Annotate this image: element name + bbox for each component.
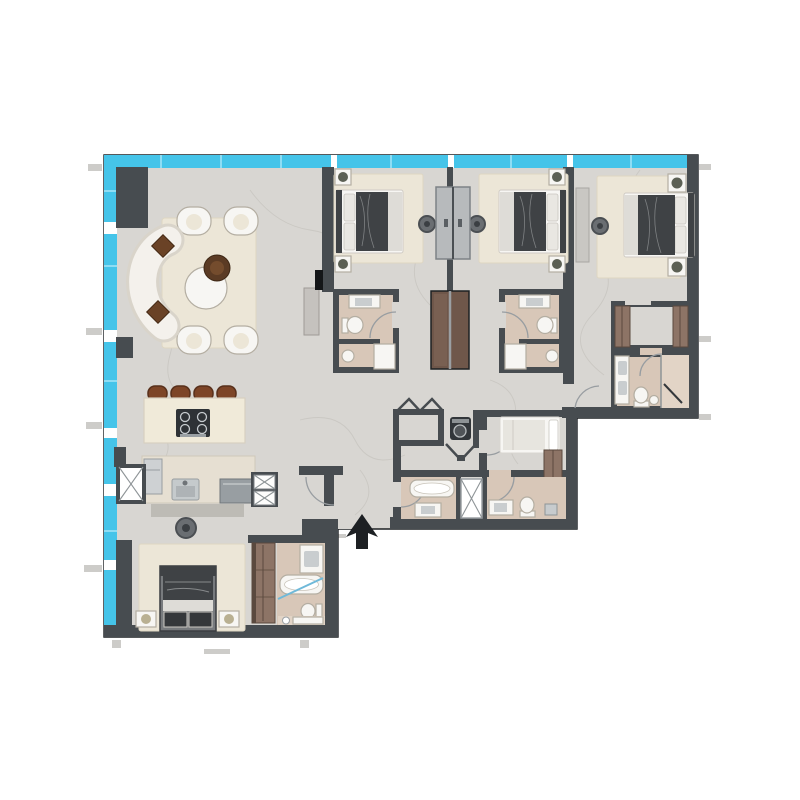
bathroom-5-shelf (545, 504, 557, 515)
dining-chair-1 (177, 207, 211, 235)
wall-bathD-left-b (393, 507, 401, 519)
bedroom-2-bed (336, 190, 403, 253)
bedroom-3-bed (499, 190, 566, 253)
washing-machine (450, 417, 471, 440)
hall-brown-closet (431, 291, 469, 369)
bathroom-2-vanity (349, 295, 380, 308)
column-top-left (116, 167, 148, 228)
table-centerpiece-inner (210, 261, 224, 275)
bedroom-2 (334, 169, 435, 272)
master-bath-shower-strip (278, 616, 325, 625)
bedroom-3 (469, 169, 568, 272)
master-bath-vanity (300, 545, 323, 573)
floor-plan-page (0, 0, 800, 800)
master-nightstand-right (219, 611, 239, 627)
oven-tower (251, 472, 278, 507)
service-shaft (118, 466, 144, 502)
bathroom-3-partition (519, 339, 563, 344)
dining-chair-4 (224, 326, 258, 354)
bedroom-2-nightstand-top (335, 169, 351, 185)
wall-left-stub-1 (116, 337, 133, 358)
tick-left-3 (86, 422, 102, 429)
wall-maid-left-a (479, 410, 487, 430)
bathroom-5 (487, 470, 566, 519)
tick-right-2 (699, 336, 711, 342)
bathroom-2 (336, 292, 400, 370)
bathroom-2-toilet (342, 317, 363, 334)
tick-right-1 (699, 164, 711, 170)
bathroom-5-toilet (520, 497, 535, 517)
bedroom-2-nightstand-bottom (335, 256, 351, 272)
bathroom-2-basin (342, 350, 354, 362)
maid-bed (500, 417, 560, 453)
ceiling-fan-bedroom-3 (469, 216, 485, 232)
tick-bottom-2 (204, 649, 230, 654)
walk-in-door-gap (625, 298, 651, 305)
bedroom-4-bed (624, 193, 694, 257)
shared-wardrobe (436, 187, 470, 259)
guest-bathtub (410, 480, 454, 497)
bathroom-2-shower (374, 344, 395, 369)
bathroom-2-partition (336, 339, 380, 344)
bathroom-3 (498, 292, 563, 370)
wall-kitchen-t-vertical (324, 475, 334, 506)
bathroom-5-sink (489, 500, 513, 515)
master-bathtub (280, 575, 323, 594)
bathroom-3-basin (546, 350, 558, 362)
floor-plan (0, 0, 800, 800)
wall-maid-top (479, 410, 574, 417)
bedroom-4-nightstand-bottom (668, 258, 686, 276)
dining-chair-2 (224, 207, 258, 235)
bathroom-3-toilet (537, 317, 557, 334)
bedroom-4-nightstand-top (668, 174, 686, 192)
bedroom-4-door-gap (563, 384, 574, 407)
tv-screen (315, 270, 323, 290)
walk-in-closet-4 (614, 298, 690, 348)
tv-console (304, 288, 319, 335)
bathroom-3-shower (505, 344, 526, 369)
wall-step-vertical (566, 407, 577, 529)
glazing-top (104, 155, 698, 168)
bathroom-3-door-gap (498, 302, 506, 328)
laundry-door-stop (457, 455, 465, 461)
master-nightstand-left (136, 611, 156, 627)
wall-living-bedroom2 (322, 167, 334, 292)
bathroom-4-toilet (634, 387, 649, 407)
bathroom-2-door-gap (392, 302, 400, 328)
dishwasher (220, 479, 254, 503)
wall-master-left-strip (116, 540, 132, 626)
bathroom-4-vanity (615, 356, 629, 404)
wall-master-top (248, 535, 328, 543)
fridge (144, 459, 162, 494)
tick-bottom-1 (112, 640, 121, 648)
wall-kitchen-t-horizontal (299, 466, 343, 475)
master-wardrobe (252, 543, 275, 623)
bedroom-3-nightstand-top (549, 169, 565, 185)
tick-left-1 (88, 164, 102, 171)
bathroom-5-door-gap (489, 470, 511, 477)
wall-maid-left-b (479, 453, 487, 472)
tick-left-4 (84, 565, 102, 572)
kitchen-sink (172, 479, 199, 500)
ceiling-fan-kitchen (176, 518, 196, 538)
tick-left-2 (86, 328, 102, 335)
bathroom-4 (614, 348, 690, 409)
cooktop (176, 409, 210, 437)
bathroom-3-vanity (519, 295, 550, 308)
guest-bath-sink (415, 503, 441, 517)
ceiling-fan-bedroom-2 (419, 216, 435, 232)
tick-bottom-3 (300, 640, 309, 648)
tick-right-3 (699, 414, 711, 420)
guest-bathroom (401, 477, 456, 519)
shower-cabin (461, 479, 482, 518)
bedroom-4-dresser (576, 188, 589, 262)
master-bathroom (277, 543, 325, 625)
counter-shadow (151, 504, 244, 517)
dining-chair-3 (177, 326, 211, 354)
bedroom-3-nightstand-bottom (549, 256, 565, 272)
wall-laundry-right (473, 410, 479, 448)
master-bedroom (136, 543, 275, 631)
ceiling-fan-bedroom-4 (592, 218, 608, 234)
master-bed (160, 566, 216, 631)
